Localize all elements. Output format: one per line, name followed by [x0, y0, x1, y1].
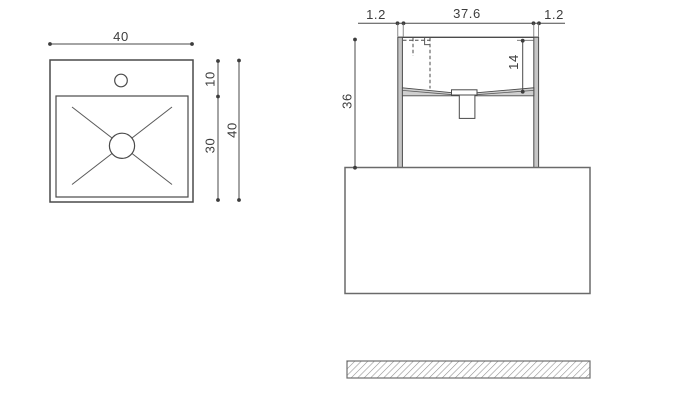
dim-dot: [537, 21, 541, 25]
dim-dot: [521, 39, 525, 43]
top-view: [50, 60, 193, 202]
dim-dot: [353, 38, 357, 42]
dim-label-left-wall: 1.2: [366, 7, 386, 22]
dim-label-basin-height: 36: [340, 93, 355, 109]
dim-label-deck-depth: 10: [203, 71, 218, 87]
drain-pipe: [459, 95, 475, 118]
dim-label-inner-width: 37.6: [453, 6, 481, 21]
dim-dot: [190, 42, 194, 46]
dim-label-right-wall: 1.2: [544, 7, 564, 22]
dim-dot: [216, 198, 220, 202]
dim-dot: [521, 90, 525, 94]
dim-label-bowl-depth: 30: [203, 138, 218, 154]
drawing-canvas: 40 10 30 40 1.2 37.6 1.2 36: [0, 0, 687, 419]
basin-right-wall: [534, 37, 539, 167]
drain-flange: [452, 90, 478, 95]
dim-dot: [237, 198, 241, 202]
front-view: [345, 37, 590, 378]
dim-dot: [216, 95, 220, 99]
dim-label-top-width: 40: [113, 29, 129, 44]
dim-dot: [48, 42, 52, 46]
drain-hole: [109, 133, 134, 158]
dim-dot: [216, 59, 220, 63]
dim-dot: [237, 59, 241, 63]
washbasin-technical-drawing: 40 10 30 40 1.2 37.6 1.2 36: [0, 0, 687, 419]
dim-dot: [353, 166, 357, 170]
faucet-hole: [115, 74, 128, 87]
pedestal-block: [345, 168, 590, 294]
basin-left-wall: [398, 37, 403, 167]
basin-outline-top-view: [50, 60, 193, 202]
dim-label-overall-depth: 40: [225, 122, 240, 138]
dim-label-bowl-inner-depth: 14: [506, 54, 521, 70]
floor-slab-hatch: [347, 361, 590, 378]
